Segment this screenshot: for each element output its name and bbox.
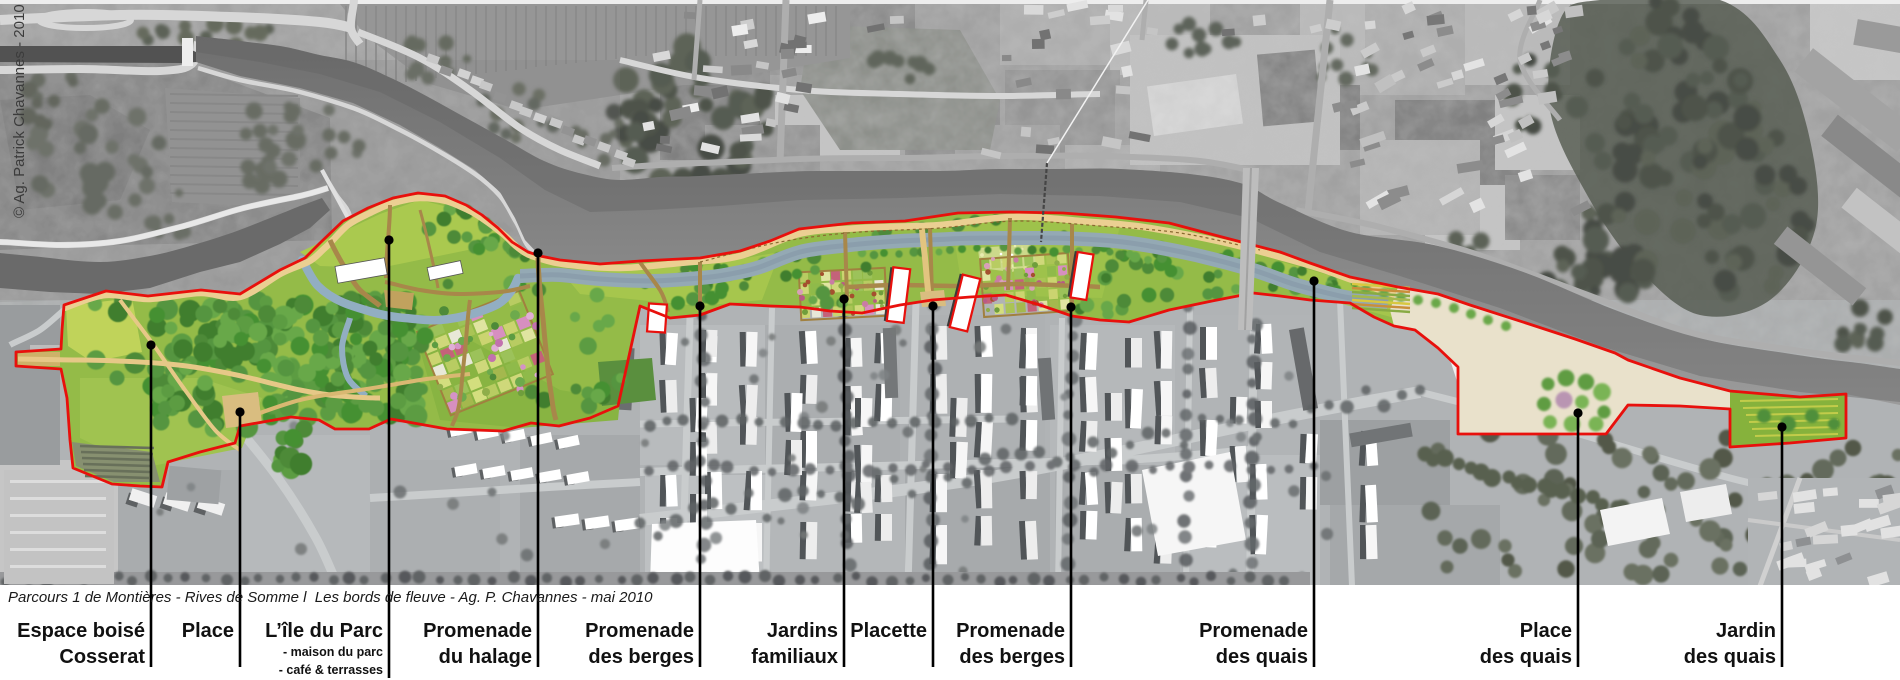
svg-text:Jardin: Jardin [1716, 620, 1776, 642]
svg-text:des berges: des berges [588, 646, 694, 668]
svg-text:des quais: des quais [1684, 646, 1776, 668]
svg-text:Promenade: Promenade [585, 620, 694, 642]
svg-text:Promenade: Promenade [1199, 620, 1308, 642]
svg-text:L’île du Parc: L’île du Parc [265, 620, 383, 642]
svg-text:Place: Place [182, 620, 234, 642]
svg-text:Promenade: Promenade [423, 620, 532, 642]
svg-text:Jardins: Jardins [767, 620, 838, 642]
svg-text:des quais: des quais [1216, 646, 1308, 668]
svg-text:familiaux: familiaux [751, 646, 838, 668]
svg-text:- maison du parc: - maison du parc [283, 645, 383, 659]
svg-text:du halage: du halage [439, 646, 532, 668]
svg-text:Cosserat: Cosserat [59, 646, 145, 668]
svg-text:Promenade: Promenade [956, 620, 1065, 642]
svg-text:des berges: des berges [959, 646, 1065, 668]
svg-text:© Ag. Patrick Chavannes - 2010: © Ag. Patrick Chavannes - 2010 [11, 4, 28, 218]
svg-text:des quais: des quais [1480, 646, 1572, 668]
svg-text:Place: Place [1520, 620, 1572, 642]
svg-text:Placette: Placette [850, 620, 927, 642]
svg-text:Parcours 1 de Montières - Rive: Parcours 1 de Montières - Rives de Somme… [8, 589, 653, 606]
svg-text:- café & terrasses: - café & terrasses [279, 663, 383, 677]
svg-text:Espace boisé: Espace boisé [17, 620, 145, 642]
